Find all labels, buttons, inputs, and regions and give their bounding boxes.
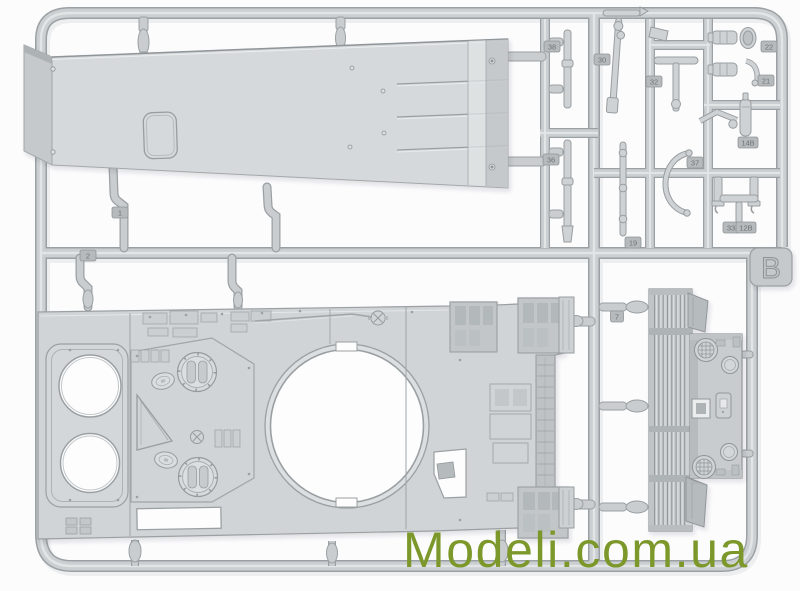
rear-plate-part (690, 334, 742, 479)
svg-text:38: 38 (548, 43, 556, 52)
svg-text:33: 33 (727, 224, 735, 233)
part-tag: 37 (687, 157, 703, 168)
svg-text:32: 32 (650, 78, 658, 87)
svg-text:19: 19 (629, 239, 637, 248)
fan-opening-bottom (61, 434, 120, 493)
upper-hull-deck-part (38, 298, 568, 539)
svg-text:21: 21 (762, 77, 770, 86)
part-tag: 7 (611, 311, 624, 322)
crew-hatch-bottom (179, 458, 218, 497)
svg-text:36: 36 (547, 156, 555, 165)
tool-rod (564, 30, 571, 108)
part-tag: 14B (738, 137, 758, 148)
svg-text:14B: 14B (741, 139, 754, 148)
part-tag: 12B (736, 222, 756, 233)
svg-text:37: 37 (691, 159, 699, 168)
sprue-letter-tab: B (750, 248, 792, 286)
turret-ring-opening (265, 342, 429, 508)
hull-belly-plate-part (24, 39, 508, 188)
part-tag: 36 (543, 154, 559, 165)
watermark: Modeli.com.ua (403, 522, 749, 578)
tool-rod (564, 140, 571, 232)
sprue-letter: B (761, 252, 781, 285)
svg-text:2: 2 (86, 252, 90, 261)
part-tag: 38 (544, 41, 560, 52)
rect-cutout (137, 507, 221, 529)
part-tag: 1 (112, 207, 128, 218)
sprue-svg: 1 2 38 30 32 36 19 22 (0, 0, 800, 591)
grille-bottom-flap (686, 477, 707, 527)
deck-ribbed-sidewall (536, 355, 555, 487)
svg-text:7: 7 (615, 313, 619, 322)
sprue-photo: 1 2 38 30 32 36 19 22 (0, 0, 800, 591)
part-tag: 21 (758, 75, 774, 86)
svg-text:12B: 12B (739, 224, 752, 233)
valve-handle (191, 431, 204, 444)
fan-opening-top (59, 355, 121, 417)
svg-text:30: 30 (598, 56, 606, 65)
part-tag: 30 (594, 54, 610, 65)
svg-text:22: 22 (765, 43, 773, 52)
part-tag: 19 (625, 237, 641, 248)
crew-hatch-top (178, 353, 217, 392)
svg-text:1: 1 (118, 209, 122, 218)
part-tag: 22 (761, 41, 777, 52)
part-tag: 2 (80, 250, 96, 261)
fan-cover-bottom (693, 456, 716, 479)
fan-cover-top (695, 339, 718, 362)
part-tag: 32 (646, 76, 662, 87)
